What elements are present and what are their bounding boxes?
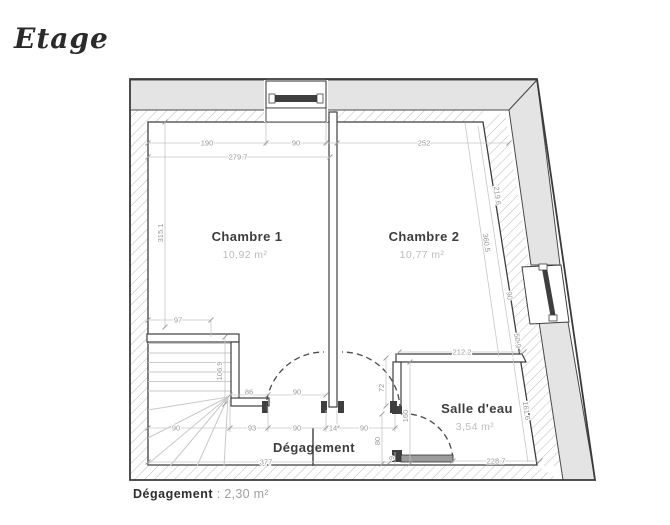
door-leaf-bathroom xyxy=(401,455,453,462)
dim-label: 252 xyxy=(418,139,431,148)
dim-label: 190 xyxy=(201,139,214,148)
dimension-labels: 190 90 252 279.7 315.1 97 219.6 360.5 90… xyxy=(156,139,532,467)
stair-wall-right xyxy=(231,342,239,400)
dim-label: 97 xyxy=(174,316,182,325)
dim-label: 14 xyxy=(329,424,337,433)
dim-label: 72 xyxy=(377,384,386,392)
dim-label: 279.7 xyxy=(229,153,248,162)
room-label-chambre2: Chambre 2 xyxy=(389,229,460,244)
area-note-label: Dégagement xyxy=(133,487,213,501)
dim-label: 9 xyxy=(387,456,396,460)
dim-label: 377 xyxy=(260,458,273,467)
dim-label: 90 xyxy=(293,424,301,433)
room-label-salle-eau: Salle d'eau xyxy=(441,401,513,416)
room-labels: Chambre 1 10,92 m² Chambre 2 10,77 m² Sa… xyxy=(212,229,513,455)
dim-label: 93 xyxy=(248,424,256,433)
dim-label: 212.2 xyxy=(453,348,472,357)
area-note: Dégagement : 2,30 m² xyxy=(133,487,269,501)
dim-label: 90 xyxy=(504,291,514,301)
room-label-degagement: Dégagement xyxy=(273,440,355,455)
room-area-salle-eau: 3,54 m² xyxy=(456,421,494,433)
dim-label: 315.1 xyxy=(156,224,165,243)
window-top xyxy=(264,80,328,122)
dim-label: 219.6 xyxy=(492,186,504,206)
dim-label: 50.9 xyxy=(512,333,523,349)
window-right xyxy=(522,264,569,324)
dim-label: 228.7 xyxy=(487,457,506,466)
dim-label: 80 xyxy=(373,437,382,445)
dim-label: 90 xyxy=(360,424,368,433)
door-arc-chambre1 xyxy=(266,352,324,410)
room-label-chambre1: Chambre 1 xyxy=(212,229,283,244)
area-note-value: : 2,30 m² xyxy=(213,487,269,501)
floor-plan: 190 90 252 279.7 315.1 97 219.6 360.5 90… xyxy=(0,0,670,525)
window-glazing xyxy=(272,95,320,102)
room-area-chambre1: 10,92 m² xyxy=(223,249,268,261)
room-area-chambre2: 10,77 m² xyxy=(400,249,445,261)
dim-label: 90 xyxy=(172,424,180,433)
dim-label: 106.9 xyxy=(215,362,224,381)
dim-label: 160 xyxy=(401,410,410,423)
dim-label: 90 xyxy=(293,388,301,397)
dim-label: 90 xyxy=(292,139,300,148)
interior-walls xyxy=(147,112,526,408)
dim-label: 360.5 xyxy=(481,233,493,253)
dim-label: 86 xyxy=(245,388,253,397)
dim-label: 161.6 xyxy=(521,401,533,421)
